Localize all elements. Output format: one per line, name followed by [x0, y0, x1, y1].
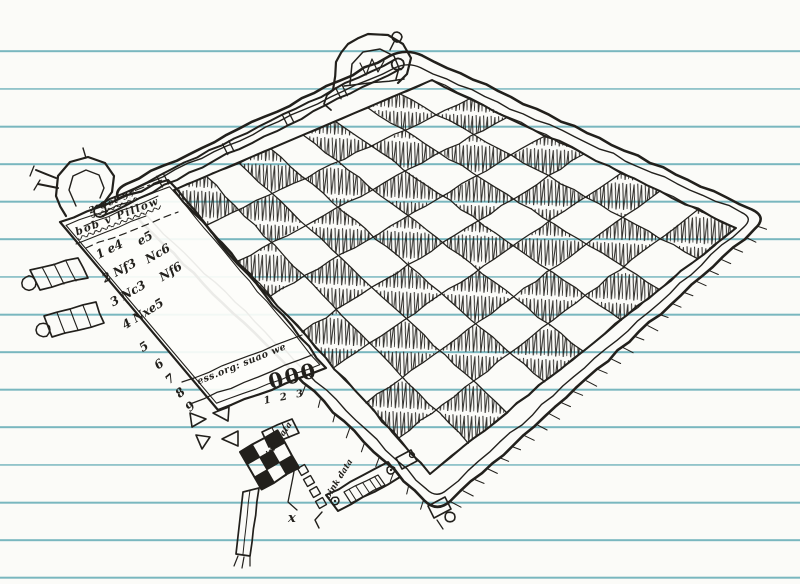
notebook-paper: 2 Oct 97 bob v Pillow e5 Nc6 Nf6 1e4 2Nf… [0, 0, 800, 584]
strap-bands [22, 258, 104, 337]
strap-x-mark: x [288, 512, 296, 525]
arrow-triangles [190, 407, 238, 449]
checkbox-doodles [288, 465, 327, 511]
